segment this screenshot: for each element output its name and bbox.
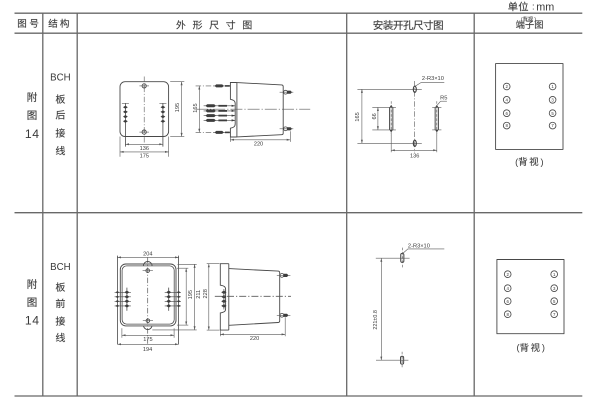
svg-text:175: 175 [143,337,152,343]
svg-text:211: 211 [196,290,202,299]
svg-text:14: 14 [25,127,40,141]
svg-text:220: 220 [250,336,259,342]
svg-text:165: 165 [193,103,199,112]
svg-text:195: 195 [188,290,194,299]
svg-text:228: 228 [203,289,209,298]
svg-text:195: 195 [175,103,181,112]
svg-text::: : [532,2,535,12]
svg-text:): ) [534,17,536,23]
svg-text:136: 136 [410,153,419,159]
svg-text:220: 220 [254,142,263,148]
svg-text:): ) [540,157,543,167]
svg-text:175: 175 [140,154,149,160]
svg-text:66: 66 [372,113,378,119]
svg-text:2-R3×10: 2-R3×10 [408,243,430,249]
svg-text:194: 194 [143,347,152,353]
svg-text:136: 136 [140,146,149,152]
svg-text:): ) [542,343,545,353]
svg-text:14: 14 [25,313,40,327]
svg-text:mm: mm [536,1,554,13]
svg-text:(: ( [521,17,523,23]
svg-text:BCH: BCH [50,72,70,83]
svg-text:221±0.8: 221±0.8 [373,310,379,329]
svg-text:165: 165 [355,112,361,121]
svg-text:(: ( [515,157,518,167]
svg-text:R5: R5 [440,95,447,101]
svg-text:(: ( [516,343,519,353]
svg-text:2-R3×10: 2-R3×10 [422,76,444,82]
svg-text:204: 204 [143,251,152,257]
svg-text:BCH: BCH [50,262,70,273]
